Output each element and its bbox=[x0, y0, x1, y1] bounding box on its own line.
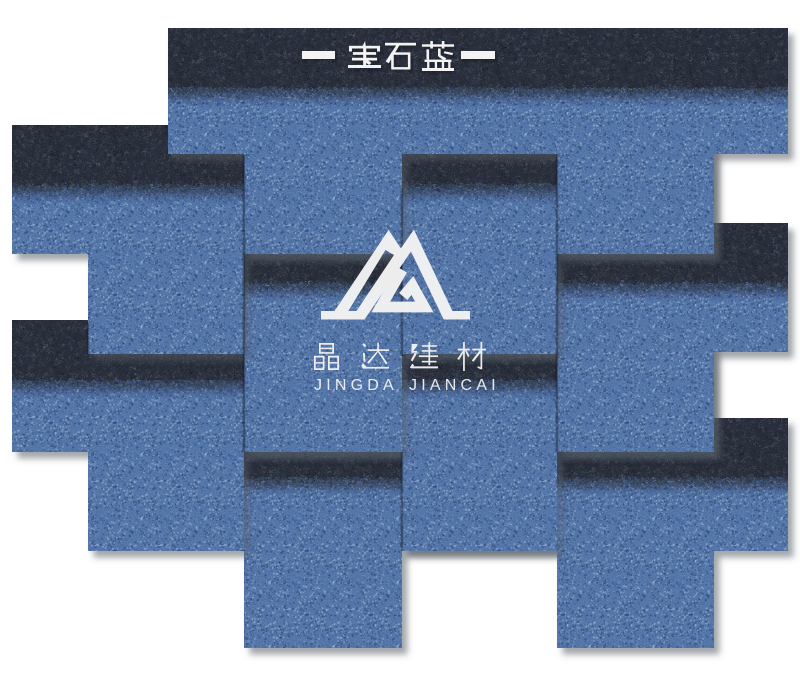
svg-text:JIANCAI: JIANCAI bbox=[409, 377, 500, 394]
svg-text:JINGDA: JINGDA bbox=[314, 377, 398, 394]
